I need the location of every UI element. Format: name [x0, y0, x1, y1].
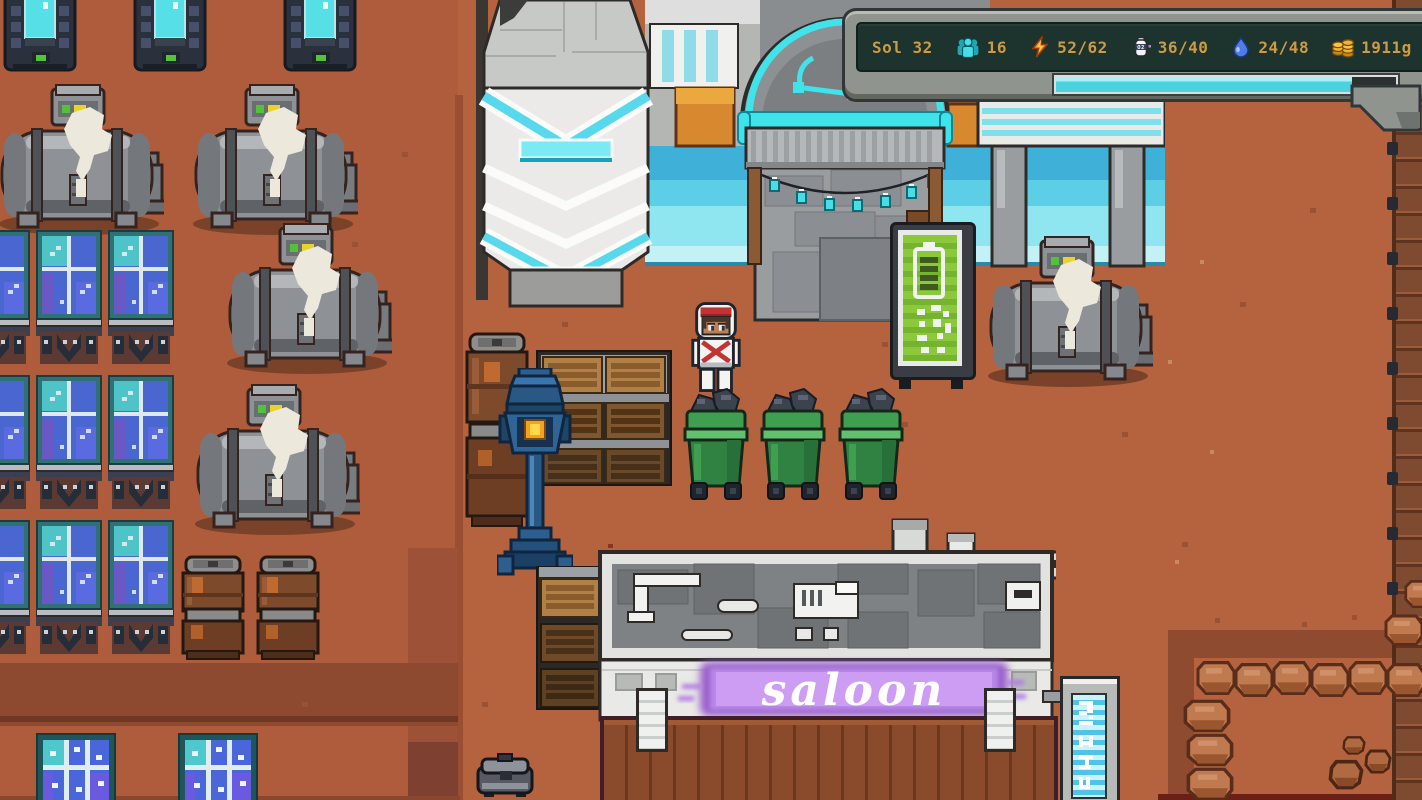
small-rock	[1364, 748, 1392, 774]
solar-panel[interactable]	[108, 375, 174, 521]
wall-stud	[1387, 197, 1398, 210]
oxygen-tank-icon: O2	[1130, 36, 1152, 58]
solar-panel[interactable]	[108, 520, 174, 666]
gas-tank-machine[interactable]	[983, 235, 1153, 390]
solar-panel[interactable]	[0, 520, 30, 666]
sign-leg	[951, 377, 963, 389]
water-readout: 24/48	[1230, 36, 1309, 58]
wall-stud	[1387, 307, 1398, 320]
small-rock	[1342, 735, 1366, 755]
striped-panel	[650, 24, 738, 88]
credits-readout: 1911g	[1331, 35, 1412, 59]
power-icon	[1029, 36, 1051, 58]
saloon-sign-text: saloon	[761, 665, 947, 716]
grill[interactable]	[476, 753, 534, 799]
colonists-icon	[955, 35, 981, 59]
compost-bin[interactable]	[760, 385, 826, 501]
colonist-readout: 16	[955, 35, 1007, 59]
day-progress-bar	[1054, 75, 1398, 94]
boulder	[1310, 658, 1350, 702]
compost-bin[interactable]	[838, 385, 904, 501]
solar-panel[interactable]	[108, 230, 174, 376]
player-character[interactable]	[687, 301, 745, 395]
hud: Sol 32 16 52/62 O2	[842, 8, 1422, 102]
hud-corner	[1350, 84, 1422, 132]
game-viewport: saloon Sol 32 16	[0, 0, 1422, 800]
wall-stud	[1387, 472, 1398, 485]
wall-stud	[1387, 252, 1398, 265]
solar-panel[interactable]	[178, 733, 258, 800]
wall-stud	[1387, 582, 1398, 595]
oxygen-readout: O2 36/40	[1130, 36, 1209, 58]
awning-pillar	[636, 688, 668, 752]
sol-counter: Sol 32	[872, 38, 933, 57]
svg-text:O2: O2	[1137, 45, 1145, 51]
compost-bin[interactable]	[683, 385, 749, 501]
crate-stack[interactable]	[536, 566, 604, 710]
barrel-stack[interactable]	[256, 555, 320, 661]
small-rock	[1328, 758, 1364, 790]
water-drop-icon	[1230, 36, 1252, 58]
solar-panel[interactable]	[36, 733, 116, 800]
wall-stud	[1387, 417, 1398, 430]
vertical-neon-sign	[1060, 676, 1120, 800]
water-value: 24/48	[1258, 38, 1309, 57]
gas-tank-machine[interactable]	[222, 222, 392, 377]
lamp-post	[497, 368, 573, 583]
boulder	[1196, 656, 1236, 700]
solar-panel[interactable]	[36, 375, 102, 521]
solar-panel[interactable]	[36, 230, 102, 376]
boulder	[1404, 576, 1422, 612]
power-readout: 52/62	[1029, 36, 1108, 58]
coins-icon	[1331, 35, 1355, 59]
power-value: 52/62	[1057, 38, 1108, 57]
boulder	[1348, 656, 1388, 700]
battery-station-sign[interactable]	[890, 222, 976, 380]
solar-panel[interactable]	[36, 520, 102, 666]
boulder	[1384, 610, 1422, 650]
wall-stud	[1387, 527, 1398, 540]
colonist-count: 16	[987, 38, 1007, 57]
credits-value: 1911g	[1361, 38, 1412, 57]
battery-icon	[903, 235, 957, 361]
solar-panel[interactable]	[0, 375, 30, 521]
cryo-pod-machine[interactable]	[3, 0, 77, 74]
gas-tank-machine[interactable]	[190, 383, 360, 538]
boulder	[1234, 658, 1274, 702]
post	[748, 168, 761, 264]
sign-glyphs	[1073, 695, 1101, 793]
wall-stud	[1387, 362, 1398, 375]
awning-pillar	[984, 688, 1016, 752]
silo-tower[interactable]	[476, 0, 658, 312]
barrel-stack[interactable]	[181, 555, 245, 661]
oxygen-value: 36/40	[1158, 38, 1209, 57]
cryo-pod-machine[interactable]	[133, 0, 207, 74]
boulder	[1186, 763, 1234, 800]
solar-panel[interactable]	[0, 230, 30, 376]
hud-panel: Sol 32 16 52/62 O2	[856, 22, 1422, 72]
boulder	[1386, 658, 1422, 702]
gas-tank-machine[interactable]	[0, 83, 164, 238]
gas-tank-machine[interactable]	[188, 83, 358, 238]
day-progress-fill	[1056, 77, 1352, 92]
boulder	[1272, 656, 1312, 700]
cryo-pod-machine[interactable]	[283, 0, 357, 74]
corrugated-awning	[746, 128, 944, 168]
neon-saloon-sign: saloon	[678, 662, 1026, 716]
wall-stud	[1387, 142, 1398, 155]
